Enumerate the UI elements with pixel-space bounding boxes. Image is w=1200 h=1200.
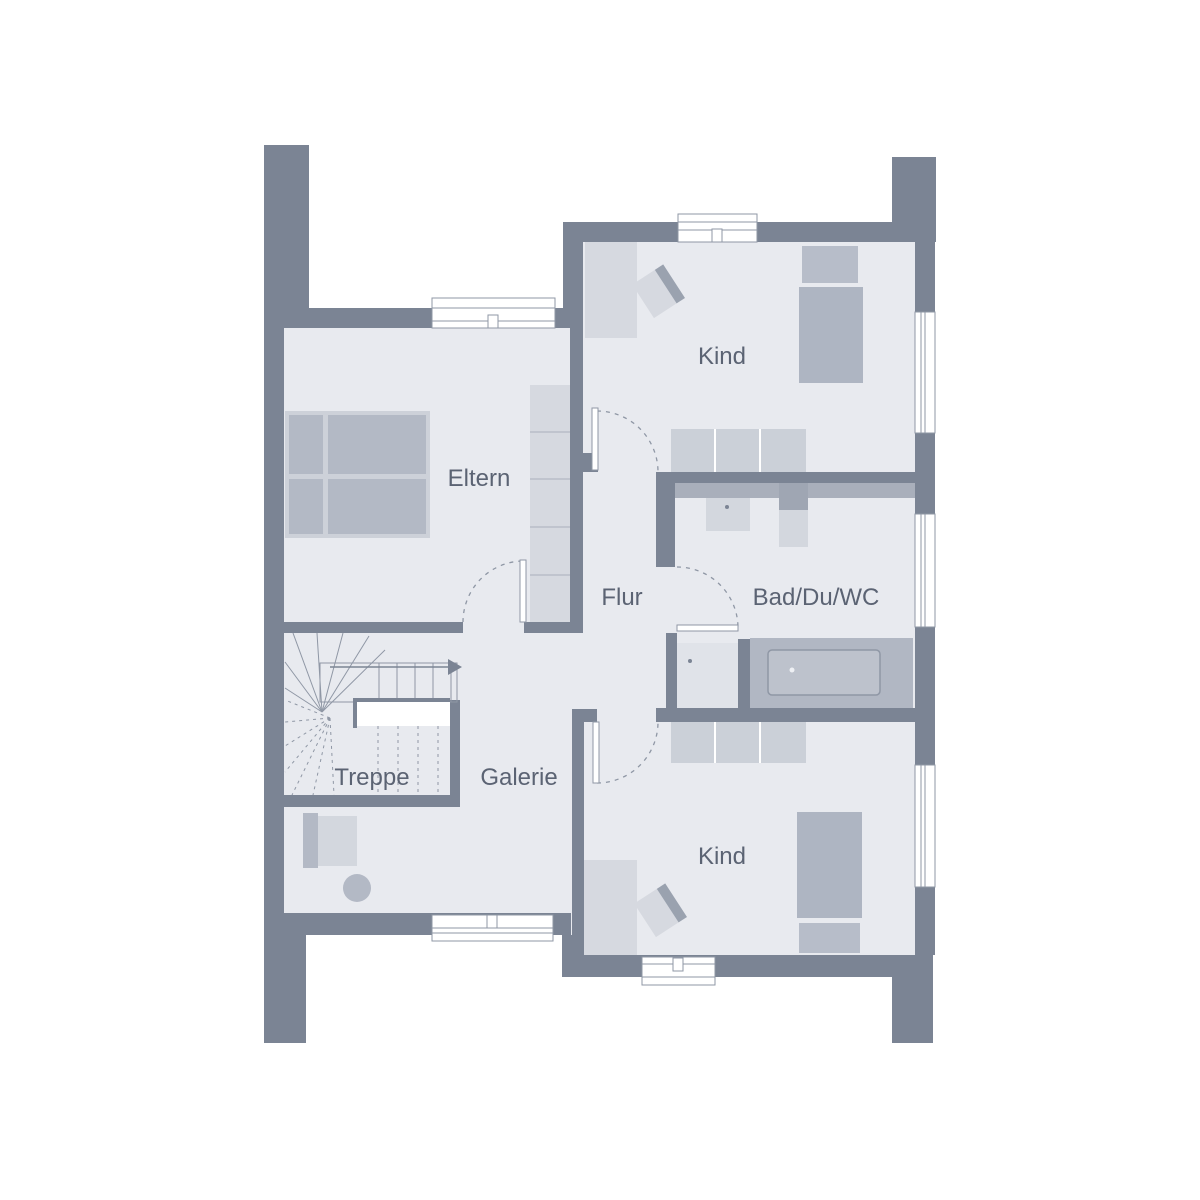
room-label-kind-bottom: Kind [698,843,746,870]
wall-pillar-bottom-right [892,977,933,1043]
galerie-side-table [343,874,371,902]
wall-kind-bottom [562,955,933,977]
wall-galerie-kind [572,722,584,957]
kind-top-wardrobe [585,242,637,338]
wall-pillar-bottom-left [264,935,306,1043]
wall-kind-bad [656,472,915,483]
window-eltern-north [432,298,555,328]
wall-kind-top-west [583,222,680,242]
window-bad-east [915,514,935,627]
eltern-bed [285,411,430,538]
room-label-bad: Bad/Du/WC [753,584,880,611]
bad-bathtub [750,638,913,708]
kind-top-sideboard [671,429,806,472]
bad-sink [706,498,750,531]
wall-shower-stub [738,639,750,708]
stairs-void [355,700,450,728]
kind-bottom-wardrobe [584,860,637,955]
bad-wc [779,483,808,547]
wall-kind-top-east [757,222,892,242]
room-label-eltern: Eltern [448,465,511,492]
window-kind-top-east [915,312,935,433]
wall-bad-bottom [656,708,915,722]
kind-bottom-bed [797,812,862,953]
room-label-flur: Flur [601,584,642,611]
wall-eltern-bottom-east [524,622,583,633]
wall-pillar-top-right [892,157,936,242]
wall-bad-west-lower [666,633,677,708]
eltern-closet [530,385,570,622]
wall-treppe-bottom [264,795,460,807]
room-label-kind-top: Kind [698,343,746,370]
floor-plan-canvas: Eltern Kind Flur Bad/Du/WC Treppe Galeri… [0,0,1200,1200]
wall-eltern-top-west [264,308,432,328]
wall-flur-south-stub [572,709,597,722]
wall-bad-west-upper [656,483,675,567]
floor-plan: Eltern Kind Flur Bad/Du/WC Treppe Galeri… [0,0,1200,1200]
kind-bottom-sideboard [671,722,806,763]
wall-left [264,308,284,935]
window-kind-top-north [678,214,757,242]
window-kind-bottom-east [915,765,935,887]
galerie-armchair [303,813,357,868]
wall-pillar-top-left [264,145,309,308]
window-galerie-south [432,915,553,941]
wall-eltern-bottom-west [264,622,463,633]
window-kind-bottom-south [642,957,715,985]
room-label-treppe: Treppe [334,764,409,791]
bad-shower [677,643,738,708]
kind-top-bed [799,246,863,383]
wall-eltern-flur [570,328,583,622]
wall-treppe-east [450,700,460,795]
room-label-galerie: Galerie [480,764,557,791]
wall-mid-top-vertical [563,222,583,328]
